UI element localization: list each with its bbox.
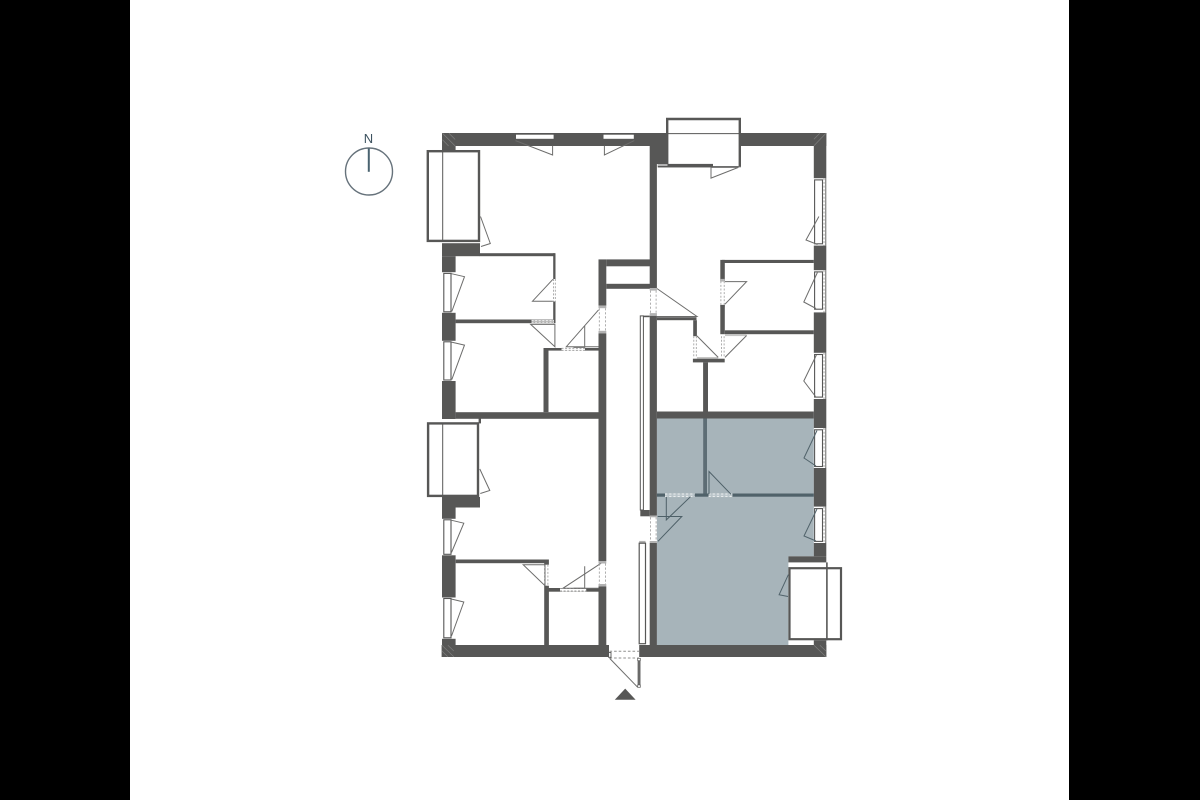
- svg-text:N: N: [364, 131, 373, 146]
